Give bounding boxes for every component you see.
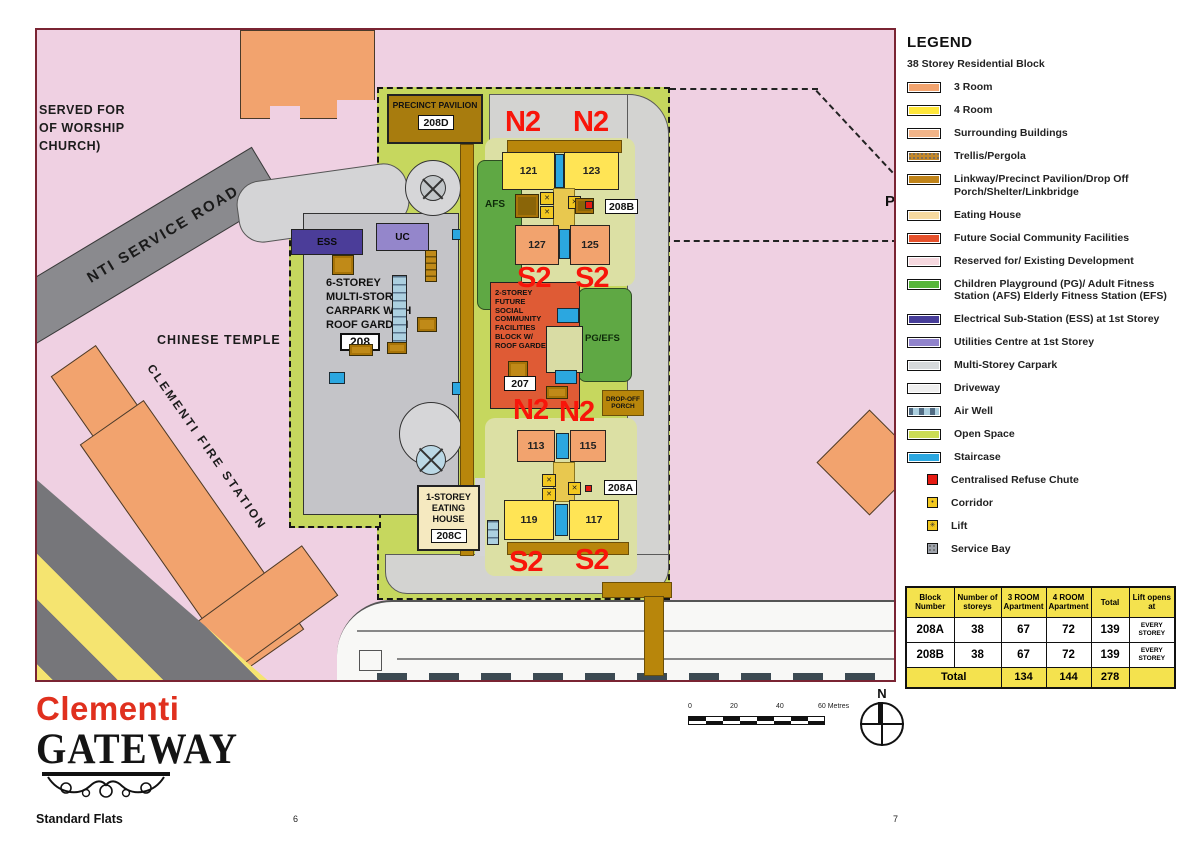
legend-label: Service Bay <box>951 543 1011 556</box>
flat-type-label: Standard Flats <box>36 812 236 826</box>
swatch-playground <box>907 279 941 290</box>
stack-label-s2: S2 <box>575 546 608 575</box>
staircase <box>329 372 345 384</box>
worship-line-2: OF WORSHIP <box>39 121 125 135</box>
legend-item: Centralised Refuse Chute <box>907 474 1199 487</box>
road-line <box>357 630 896 632</box>
pavilion-title: PRECINCT PAVILION <box>389 100 481 110</box>
page-number-right: 7 <box>893 814 898 824</box>
scale-tick-60: 60 Metres <box>818 703 849 710</box>
legend-item: Utilities Centre at 1st Storey <box>907 336 1199 349</box>
legend-item: Children Playground (PG)/ Adult Fitness … <box>907 278 1199 303</box>
block-113: 113 <box>517 430 555 462</box>
boundary-dash-diagonal <box>816 90 894 173</box>
cell: EVERY STOREY <box>1129 617 1175 642</box>
legend-label: Future Social Community Facilities <box>954 232 1129 245</box>
kerb-markings <box>377 673 896 682</box>
stack-label-n2: N2 <box>513 396 548 425</box>
staircase <box>555 154 564 188</box>
legend-label: Driveway <box>954 382 1000 395</box>
col-total: Total <box>1091 587 1129 617</box>
swatch-service-bay <box>927 543 938 554</box>
legend-label: Corridor <box>951 497 993 510</box>
bottom-road <box>337 600 896 682</box>
lift-icon: ✕ <box>568 482 581 495</box>
worship-line-3: CHURCH) <box>39 139 125 153</box>
block-119-label: 119 <box>521 514 538 526</box>
swatch-4-room <box>907 105 941 116</box>
legend-item: Reserved for/ Existing Development <box>907 255 1199 268</box>
stack-label-s2: S2 <box>517 264 550 293</box>
compass-north-pointer <box>878 702 883 724</box>
legend-item: 4 Room <box>907 104 1199 117</box>
block-125-label: 125 <box>581 239 599 251</box>
legend-item: Trellis/Pergola <box>907 150 1199 163</box>
service-road-label: NTI SERVICE ROAD <box>35 182 242 322</box>
legend-label: Linkway/Precinct Pavilion/Drop Off Porch… <box>954 173 1179 198</box>
drop-off-porch: DROP-OFF PORCH <box>602 390 644 416</box>
legend-item: Driveway <box>907 382 1199 395</box>
swatch-utilities <box>907 337 941 348</box>
block-121-label: 121 <box>520 165 538 177</box>
block-117: 117 <box>569 500 619 540</box>
swatch-trellis <box>907 151 941 162</box>
cell: 72 <box>1046 642 1091 667</box>
trellis <box>515 194 539 218</box>
roof-garden <box>546 326 583 373</box>
swatch-eating-house <box>907 210 941 221</box>
ess-block: ESS <box>291 229 363 255</box>
staircase <box>555 504 568 536</box>
block-121: 121 <box>502 152 555 190</box>
carpark-line-4: ROOF GARDEN <box>326 318 426 332</box>
lift-icon: ✕ <box>540 192 554 205</box>
swatch-carpark <box>907 360 941 371</box>
block-117-label: 117 <box>586 514 603 526</box>
p-road-fragment: P <box>885 193 895 210</box>
swatch-driveway <box>907 383 941 394</box>
legend-label: Surrounding Buildings <box>954 127 1068 140</box>
air-well <box>487 520 499 545</box>
staircase <box>557 308 579 323</box>
swatch-surrounding <box>907 128 941 139</box>
block-115-label: 115 <box>580 440 597 452</box>
precinct-pavilion: PRECINCT PAVILION 208D <box>387 94 483 144</box>
worship-parcel-label: SERVED FOR OF WORSHIP CHURCH) <box>39 103 125 153</box>
roundabout-south-island <box>416 445 446 475</box>
north-letter: N <box>858 686 906 701</box>
block-summary-table: Block Number Number of storeys 3 ROOM Ap… <box>905 586 1176 689</box>
legend-title: LEGEND <box>907 34 1199 51</box>
eating-house: 1-STOREY EATING HOUSE 208C <box>417 485 480 551</box>
cell: 139 <box>1091 617 1129 642</box>
legend-item: ✳ Lift <box>907 520 1199 533</box>
uc-block: UC <box>376 223 429 251</box>
total-all-cell: 278 <box>1091 667 1129 688</box>
legend-label: Utilities Centre at 1st Storey <box>954 336 1094 349</box>
legend-item: Service Bay <box>907 543 1199 556</box>
legend-label: Trellis/Pergola <box>954 150 1026 163</box>
corridor-north <box>553 188 575 230</box>
legend-label: Multi-Storey Carpark <box>954 359 1057 372</box>
logo-line-2: GATEWAY <box>36 724 236 774</box>
stack-label-s2: S2 <box>575 264 608 293</box>
cell: 208B <box>906 642 954 667</box>
eating-code-box: 208C <box>431 529 467 543</box>
legend-label: Lift <box>951 520 967 533</box>
cell: 67 <box>1001 617 1046 642</box>
legend-label: 4 Room <box>954 104 993 117</box>
carpark-line-2: MULTI-STOREY <box>326 290 426 304</box>
boundary-dash-top <box>670 88 818 90</box>
legend-label: Eating House <box>954 209 1021 222</box>
legend-panel: LEGEND 38 Storey Residential Block 3 Roo… <box>907 34 1199 566</box>
table-total-row: Total 134 144 278 <box>906 667 1175 688</box>
block-127-label: 127 <box>528 239 546 251</box>
trellis <box>387 342 407 354</box>
roundabout-north-island <box>420 175 446 201</box>
total-label-cell: Total <box>906 667 1001 688</box>
stack-label-n2: N2 <box>505 108 540 137</box>
pavilion-code-box: 208D <box>418 115 454 130</box>
cell: 67 <box>1001 642 1046 667</box>
trellis <box>349 344 373 356</box>
block-125: 125 <box>570 225 610 265</box>
legend-item: Air Well <box>907 405 1199 418</box>
stack-label-n2: N2 <box>559 398 594 427</box>
legend-item: Future Social Community Facilities <box>907 232 1199 245</box>
swatch-3-room <box>907 82 941 93</box>
surrounding-building-diamond <box>816 409 896 515</box>
stack-label-s2: S2 <box>509 548 542 577</box>
legend-item: Eating House <box>907 209 1199 222</box>
legend-label: Open Space <box>954 428 1015 441</box>
page-number-left: 6 <box>293 814 298 824</box>
staircase <box>555 370 577 384</box>
pg-efs-area: PG/EFS <box>578 288 632 382</box>
swatch-future-social <box>907 233 941 244</box>
cell: EVERY STOREY <box>1129 642 1175 667</box>
road-square-marking <box>359 650 382 671</box>
table-header-row: Block Number Number of storeys 3 ROOM Ap… <box>906 587 1175 617</box>
legend-label: Centralised Refuse Chute <box>951 474 1079 487</box>
carpark-label: 6-STOREY MULTI-STOREY CARPARK WITH ROOF … <box>326 276 426 332</box>
legend-label: Air Well <box>954 405 993 418</box>
cell: 38 <box>954 642 1001 667</box>
legend-item: Linkway/Precinct Pavilion/Drop Off Porch… <box>907 173 1199 198</box>
total-4room-cell: 144 <box>1046 667 1091 688</box>
block-127: 127 <box>515 225 559 265</box>
site-plan-map: SERVED FOR OF WORSHIP CHURCH) NTI SERVIC… <box>35 28 896 682</box>
scale-strip <box>688 716 825 725</box>
block-119: 119 <box>504 500 554 540</box>
refuse-chute-icon <box>585 485 592 492</box>
cell: 208A <box>906 617 954 642</box>
north-arrow: N <box>858 686 906 750</box>
trellis <box>332 255 354 275</box>
dropoff-line-2: PORCH <box>611 403 634 411</box>
swatch-corridor: • <box>927 497 938 508</box>
scale-tick-0: 0 <box>688 703 692 710</box>
code-207-box: 207 <box>504 376 536 391</box>
building-notch <box>337 100 375 120</box>
swatch-air-well <box>907 406 941 417</box>
trellis <box>417 317 437 332</box>
total-empty-cell <box>1129 667 1175 688</box>
scale-tick-40: 40 <box>776 703 784 710</box>
staircase <box>559 229 570 259</box>
carpark-line-3: CARPARK WITH <box>326 304 426 318</box>
block-123: 123 <box>564 152 619 190</box>
swatch-linkway <box>907 174 941 185</box>
col-block-number: Block Number <box>906 587 954 617</box>
swatch-reserved <box>907 256 941 267</box>
legend-label: Children Playground (PG)/ Adult Fitness … <box>954 278 1179 303</box>
lift-icon: ✕ <box>540 206 554 219</box>
col-3room: 3 ROOM Apartment <box>1001 587 1046 617</box>
legend-label: Staircase <box>954 451 1001 464</box>
code-208b-box: 208B <box>605 199 638 214</box>
col-4room: 4 ROOM Apartment <box>1046 587 1091 617</box>
legend-item: • Corridor <box>907 497 1199 510</box>
building-notch <box>270 106 300 120</box>
legend-label: 3 Room <box>954 81 993 94</box>
logo-line-1: Clementi <box>36 690 236 728</box>
block-123-label: 123 <box>583 165 601 177</box>
lift-icon: ✕ <box>542 474 556 487</box>
eating-house-label: 1-STOREY EATING HOUSE <box>419 492 478 525</box>
cell: 139 <box>1091 642 1129 667</box>
linkway-east-vertical <box>644 596 664 676</box>
legend-item: Multi-Storey Carpark <box>907 359 1199 372</box>
swatch-refuse-chute <box>927 474 938 485</box>
cell: 72 <box>1046 617 1091 642</box>
legend-label: Electrical Sub-Station (ESS) at 1st Stor… <box>954 313 1159 326</box>
legend-item: Electrical Sub-Station (ESS) at 1st Stor… <box>907 313 1199 326</box>
linkbridge <box>425 250 437 282</box>
logo-flourish <box>36 771 176 801</box>
legend-label: Reserved for/ Existing Development <box>954 255 1134 268</box>
eating-line-3: HOUSE <box>419 514 478 525</box>
scale-tick-20: 20 <box>730 703 738 710</box>
carpark-line-1: 6-STOREY <box>326 276 426 290</box>
legend-item: Staircase <box>907 451 1199 464</box>
col-lift: Lift opens at <box>1129 587 1175 617</box>
pg-efs-label: PG/EFS <box>585 333 620 344</box>
dropoff-line-1: DROP-OFF <box>606 396 640 404</box>
legend-item: Surrounding Buildings <box>907 127 1199 140</box>
code-208a-box: 208A <box>604 480 637 495</box>
swatch-staircase <box>907 452 941 463</box>
swatch-open-space <box>907 429 941 440</box>
site-plan-page: SERVED FOR OF WORSHIP CHURCH) NTI SERVIC… <box>0 0 1200 848</box>
afs-label: AFS <box>485 199 505 210</box>
swatch-lift: ✳ <box>927 520 938 531</box>
refuse-chute-icon <box>585 201 593 209</box>
uc-label: UC <box>395 232 409 243</box>
block-115: 115 <box>570 430 606 462</box>
ess-label: ESS <box>317 237 337 248</box>
project-logo: Clementi GATEWAY Standard Flats <box>36 690 236 826</box>
scale-bar: 0 20 40 60 Metres <box>688 703 868 729</box>
scale-strip-bottom <box>689 721 824 725</box>
table-row: 208A 38 67 72 139 EVERY STOREY <box>906 617 1175 642</box>
legend-subtitle: 38 Storey Residential Block <box>907 58 1199 70</box>
staircase <box>556 433 569 459</box>
worship-line-1: SERVED FOR <box>39 103 125 117</box>
cell: 38 <box>954 617 1001 642</box>
col-storeys: Number of storeys <box>954 587 1001 617</box>
boundary-dash-mid <box>664 240 896 242</box>
air-well <box>392 275 407 343</box>
clementi-service-road: NTI SERVICE ROAD <box>35 147 282 357</box>
total-3room-cell: 134 <box>1001 667 1046 688</box>
stack-label-n2: N2 <box>573 108 608 137</box>
swatch-ess <box>907 314 941 325</box>
eating-line-1: 1-STOREY <box>419 492 478 503</box>
table-row: 208B 38 67 72 139 EVERY STOREY <box>906 642 1175 667</box>
legend-item: 3 Room <box>907 81 1199 94</box>
chinese-temple-label: CHINESE TEMPLE <box>157 333 281 347</box>
block-113-label: 113 <box>528 440 545 452</box>
legend-item: Open Space <box>907 428 1199 441</box>
eating-line-2: EATING <box>419 503 478 514</box>
